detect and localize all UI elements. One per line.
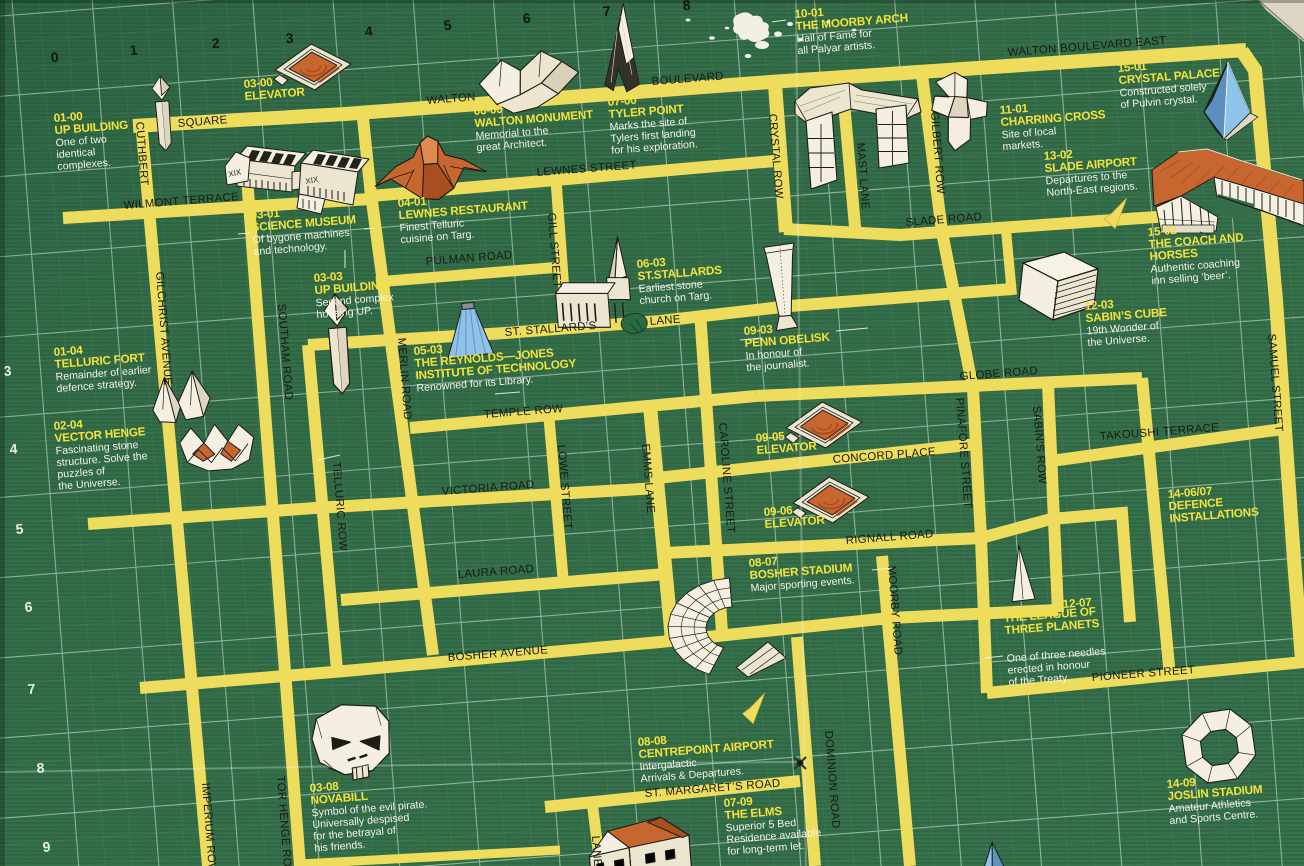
svg-text:2: 2 bbox=[211, 35, 220, 52]
svg-text:9: 9 bbox=[42, 838, 51, 855]
svg-text:5: 5 bbox=[443, 17, 452, 34]
svg-text:LANE: LANE bbox=[649, 314, 681, 328]
svg-text:4: 4 bbox=[364, 23, 373, 40]
svg-text:7: 7 bbox=[602, 3, 611, 20]
svg-text:0: 0 bbox=[50, 49, 59, 66]
svg-text:5: 5 bbox=[15, 520, 24, 537]
svg-text:7: 7 bbox=[27, 680, 36, 697]
svg-text:6: 6 bbox=[24, 598, 33, 615]
svg-text:1: 1 bbox=[129, 42, 138, 59]
svg-text:3: 3 bbox=[285, 30, 294, 47]
svg-text:4: 4 bbox=[9, 440, 18, 457]
svg-text:LANE: LANE bbox=[589, 835, 603, 866]
svg-text:8: 8 bbox=[36, 759, 45, 776]
svg-text:6: 6 bbox=[522, 10, 531, 27]
